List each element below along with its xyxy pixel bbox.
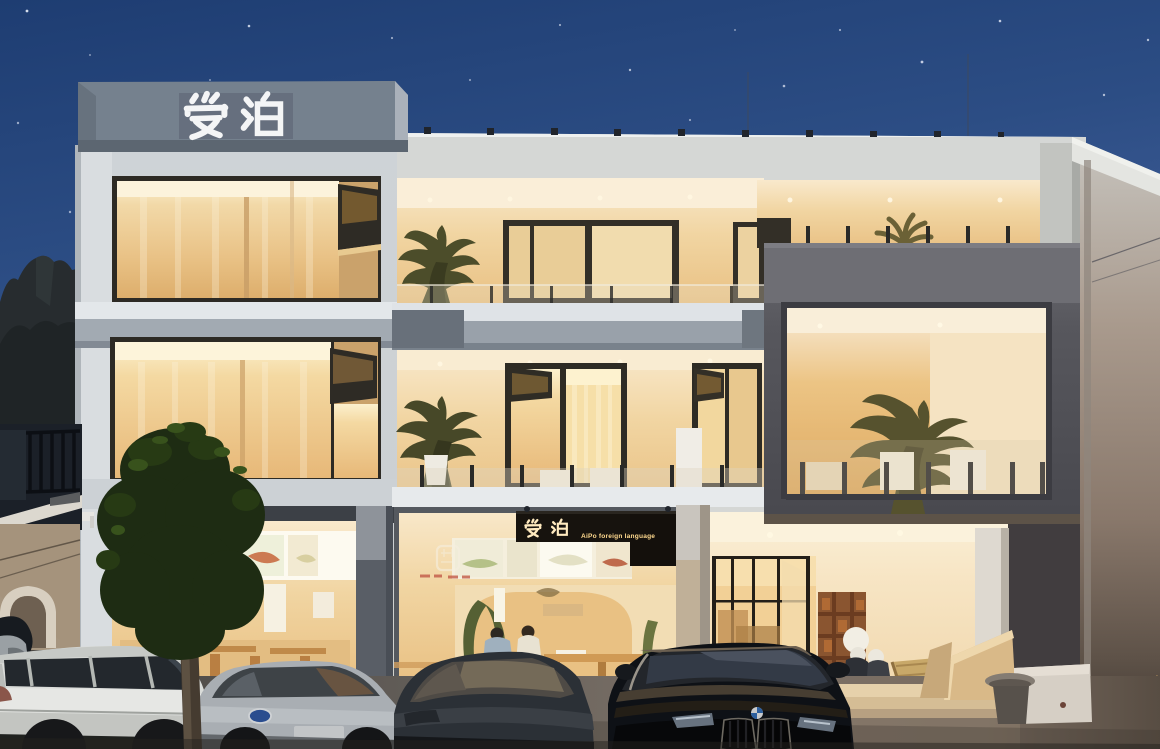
svg-text:AiPo foreign language: AiPo foreign language <box>581 533 655 540</box>
